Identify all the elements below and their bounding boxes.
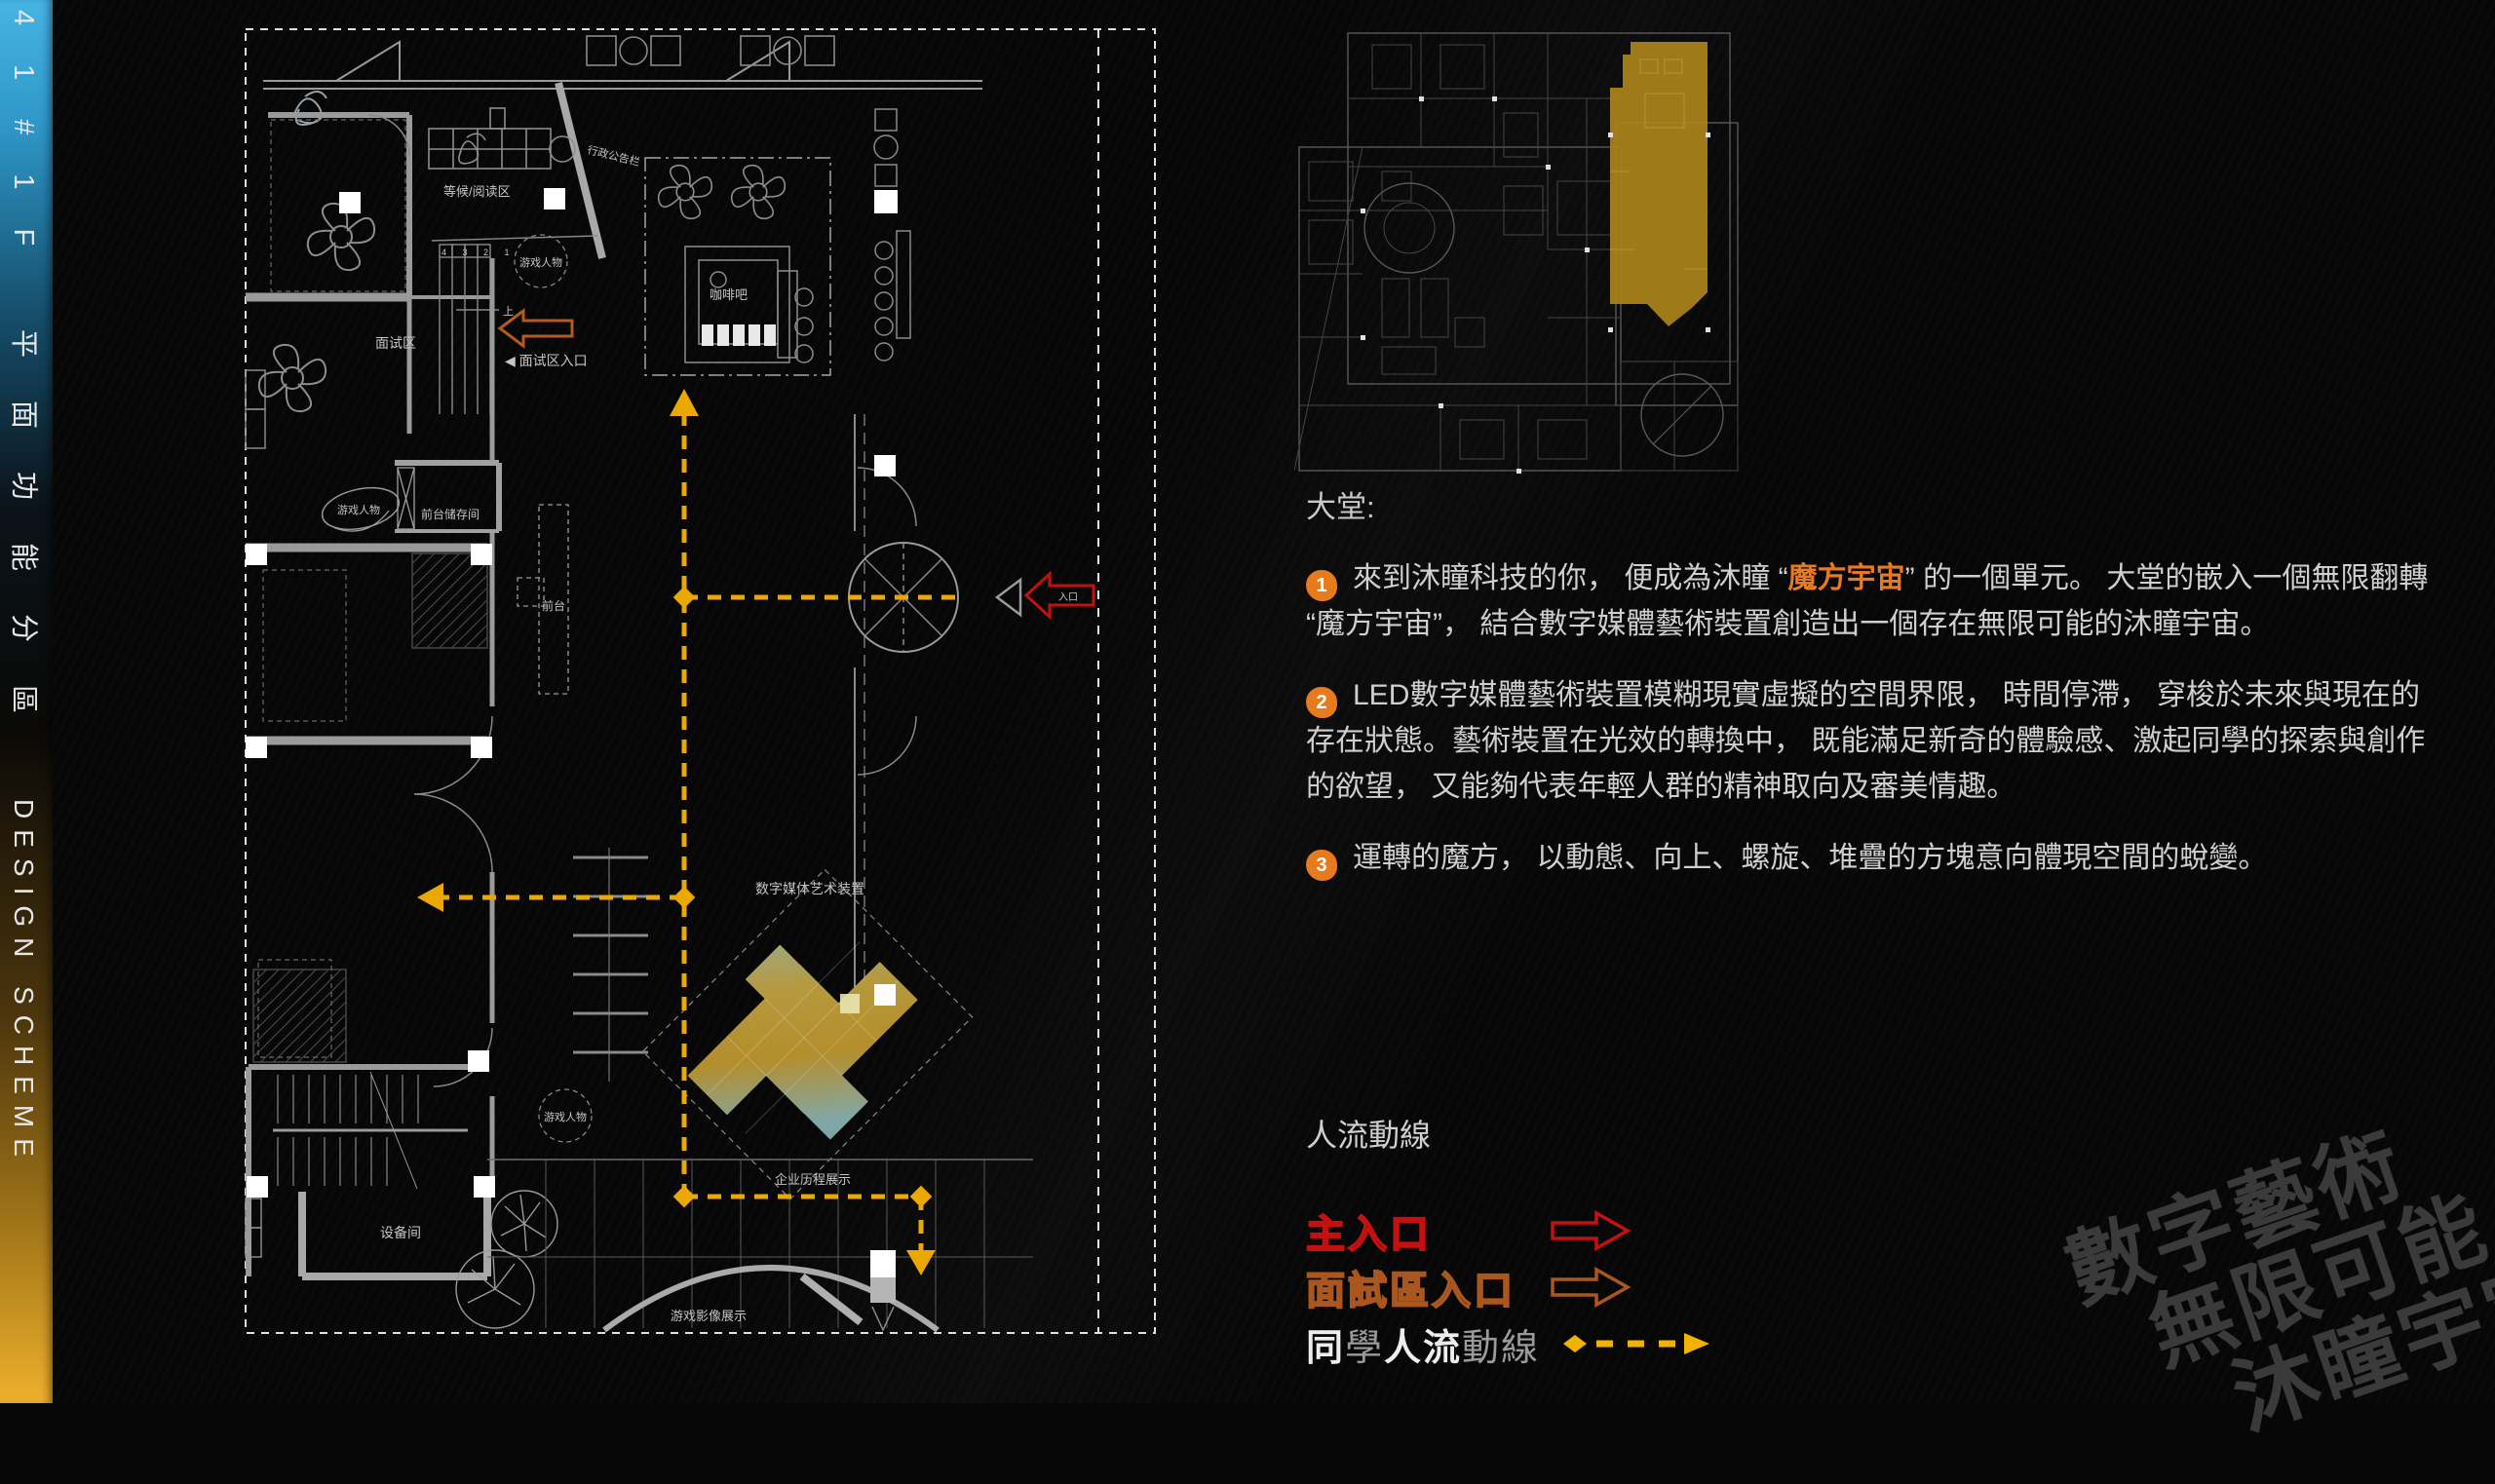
- coffee-table-1: [659, 166, 712, 219]
- label-queue-numbers: 4 3 2 1: [441, 247, 517, 257]
- minimap-highlight-lobby: [1610, 42, 1708, 326]
- stairs: [249, 1067, 487, 1276]
- point-1-badge: 1: [1306, 570, 1337, 601]
- point-3-badge: 3: [1306, 850, 1337, 881]
- top-wall: [263, 42, 982, 89]
- legend-interview-entrance-arrow-icon: [1550, 1265, 1631, 1310]
- column-v: [872, 1307, 894, 1330]
- svg-text:游戏人物: 游戏人物: [519, 255, 562, 269]
- slant-wall: [558, 83, 602, 258]
- label-game-video: 游戏影像展示: [671, 1309, 747, 1323]
- display-shelves: [573, 848, 648, 1082]
- tree-2: [456, 1250, 534, 1328]
- point-1: 1來到沐瞳科技的你， 便成為沐瞳 “魔方宇宙” 的一個單元。 大堂的嵌入一個無限…: [1306, 555, 2437, 647]
- label-notice-board: 行政公告栏: [586, 142, 641, 169]
- label-equipment-room: 设备间: [380, 1225, 421, 1240]
- label-coffee-bar: 咖啡吧: [710, 287, 748, 302]
- overview-minimap: [1294, 25, 1764, 481]
- label-interview-area: 面试区: [375, 335, 416, 351]
- watermark-line-2: 無限可能: [2085, 1164, 2495, 1399]
- cube-highlight-tile: [840, 994, 860, 1013]
- label-entrance: 入口: [1058, 592, 1078, 603]
- description-panel: 大堂: 1來到沐瞳科技的你， 便成為沐瞳 “魔方宇宙” 的一個單元。 大堂的嵌入…: [1306, 482, 2437, 906]
- point-2-text: LED數字媒體藝術裝置模糊現實虛擬的空間界限， 時間停滯， 穿梭於未來與現在的存…: [1306, 679, 2425, 803]
- legend-flow-line-icon: [1557, 1330, 1713, 1357]
- waiting-area-desks: [429, 108, 575, 169]
- tree-1: [491, 1191, 557, 1257]
- column-gray: [870, 1277, 896, 1303]
- legend-main-entrance-arrow-icon: [1550, 1208, 1631, 1253]
- sidebar-vertical-text: 41#1F 平面功能分區 DESIGN SCHEME: [6, 10, 47, 1167]
- hatch-zone-2: [253, 970, 346, 1062]
- point-3-text: 運轉的魔方， 以動態、向上、螺旋、堆疊的方塊意向體現空間的蛻變。: [1353, 842, 2267, 874]
- game-figure-markers: 游戏人物 游戏人物 游戏人物: [319, 235, 592, 1142]
- label-history-display: 企业历程展示: [775, 1172, 851, 1187]
- watermark-slogan: 數字藝術 無限可能 沐瞳宇宙: [2055, 1083, 2495, 1482]
- legend-title: 人流動線: [1306, 1111, 1713, 1156]
- legend-row-interview-entrance: 面試區入口: [1306, 1259, 1713, 1315]
- sidebar-floor-code: 41#1F: [8, 10, 39, 285]
- legend-main-entrance-label: 主入口: [1306, 1202, 1550, 1259]
- point-3: 3運轉的魔方， 以動態、向上、螺旋、堆疊的方塊意向體現空間的蛻變。: [1306, 835, 2437, 881]
- right-furniture-column: [874, 109, 910, 361]
- history-corridor-grid: [487, 1160, 1033, 1328]
- label-front-desk: 前台: [542, 598, 565, 613]
- column-white: [870, 1250, 896, 1277]
- sidebar-banner: 41#1F 平面功能分區 DESIGN SCHEME: [0, 0, 53, 1403]
- media-art-cube: [643, 869, 973, 1199]
- label-storage: 前台储存间: [421, 507, 480, 521]
- watermark-line-3: 沐瞳宇宙: [2113, 1247, 2495, 1482]
- front-desk-side: [518, 578, 544, 606]
- point-2-badge: 2: [1306, 687, 1337, 718]
- svg-text:游戏人物: 游戏人物: [544, 1110, 587, 1123]
- label-media-art: 数字媒体艺术装置: [755, 881, 864, 896]
- section-heading: 大堂:: [1306, 482, 2437, 526]
- entrance-triangle-marker: [997, 580, 1020, 615]
- minimap-round-room-line: [1653, 386, 1711, 444]
- svg-text:游戏人物: 游戏人物: [337, 503, 380, 516]
- dashed-room-1: [263, 570, 346, 721]
- legend-interview-entrance-label: 面試區入口: [1306, 1259, 1550, 1315]
- sidebar-title-cjk: 平面功能分區: [8, 329, 39, 756]
- point-1-text: 來到沐瞳科技的你， 便成為沐瞳 “魔方宇宙” 的一個單元。 大堂的嵌入一個無限翻…: [1306, 562, 2428, 640]
- legend-row-flow-line: 同學人流動線: [1306, 1315, 1713, 1372]
- label-up-mark: 上: [503, 305, 514, 318]
- point-2: 2LED數字媒體藝術裝置模糊現實虛擬的空間界限， 時間停滯， 穿梭於未來與現在的…: [1306, 672, 2437, 810]
- top-furniture-row: [587, 36, 834, 65]
- label-waiting-area: 等候/阅读区: [443, 184, 511, 199]
- minimap-auditorium: [1364, 183, 1454, 273]
- table-flower-1: [308, 204, 374, 270]
- legend-flow-line-label: 同學人流動線: [1306, 1317, 1540, 1371]
- table-flower-2: [259, 345, 326, 411]
- floor-plan: 行政公告栏 等候/阅读区 面试区 4 3: [244, 24, 1158, 1338]
- legend-row-main-entrance: 主入口: [1306, 1202, 1713, 1259]
- watermark-line-1: 數字藝術: [2055, 1083, 2495, 1317]
- coffee-table-2: [732, 166, 786, 219]
- hatch-zone-1: [412, 553, 487, 648]
- entrance-corridor: [849, 414, 958, 987]
- label-interview-entrance: ◀ 面试区入口: [505, 353, 588, 368]
- plan-border: [246, 29, 1155, 1333]
- left-rooms-walls: [246, 115, 492, 1257]
- coffee-bar-stools: [702, 324, 776, 346]
- circulation-legend: 人流動線 主入口 面試區入口 同學人流動線: [1306, 1111, 1713, 1372]
- sidebar-title-en: DESIGN SCHEME: [9, 799, 39, 1167]
